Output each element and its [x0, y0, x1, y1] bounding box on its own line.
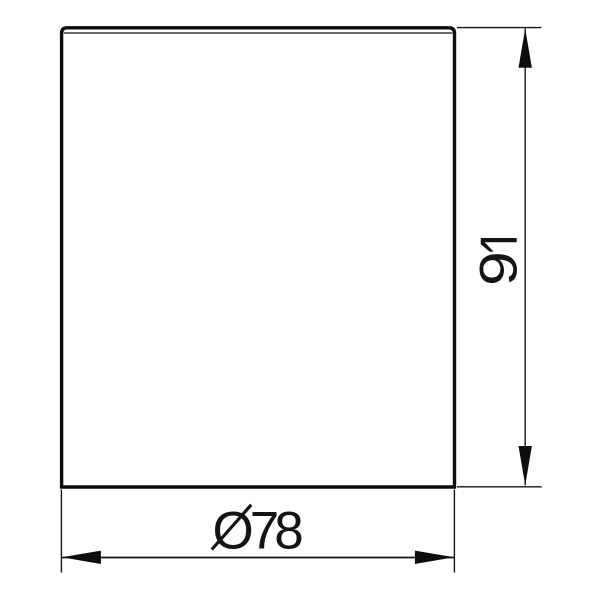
svg-text:9: 9	[470, 251, 529, 286]
svg-text:8: 8	[274, 502, 303, 561]
